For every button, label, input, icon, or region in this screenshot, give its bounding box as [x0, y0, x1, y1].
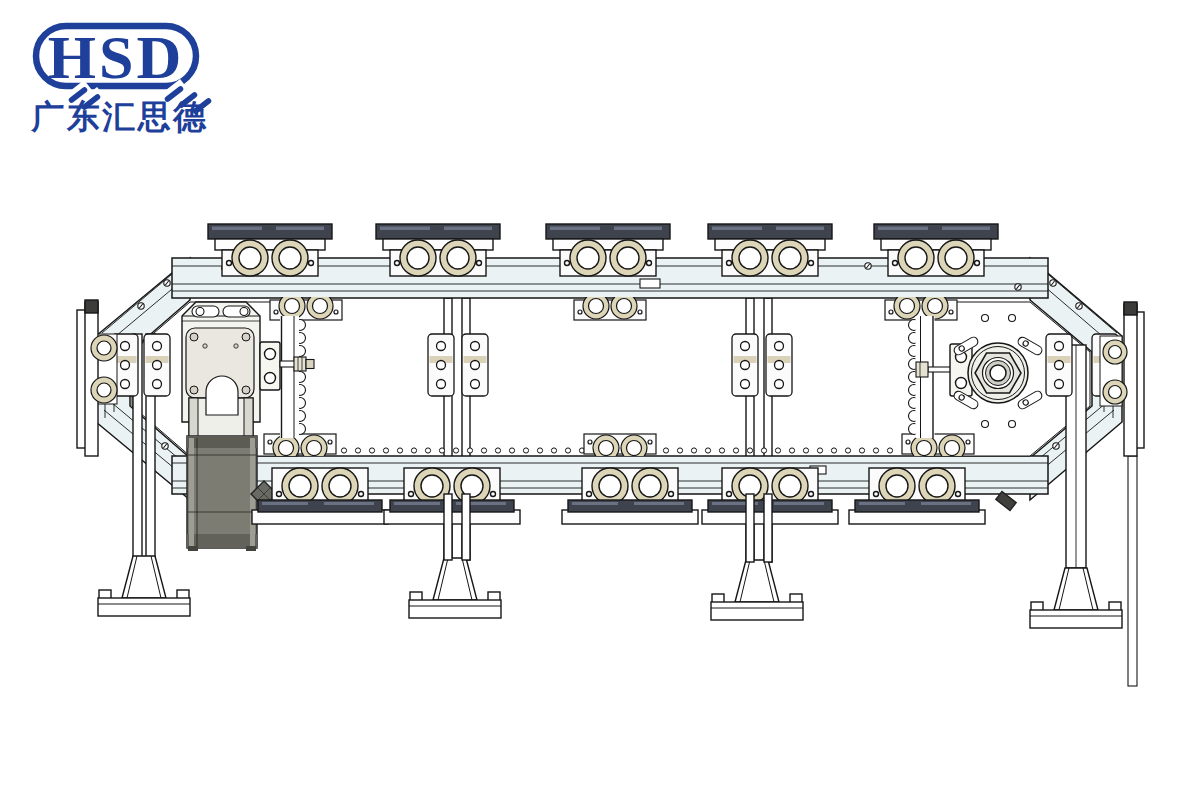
chain-link: [397, 448, 402, 453]
chain-link: [523, 448, 528, 453]
pallet-carrier-top: [208, 224, 332, 276]
chain-link: [509, 448, 514, 453]
chain-link: [887, 448, 892, 453]
chain-link: [817, 448, 822, 453]
chain-link: [761, 448, 766, 453]
chain-link: [705, 448, 710, 453]
bearing-bracket: [1046, 334, 1072, 396]
leg-foot: [711, 560, 803, 620]
gear-reducer: [182, 302, 260, 438]
leg-foot: [98, 556, 190, 616]
bolt: [1050, 280, 1056, 286]
drive-sprocket: [280, 316, 306, 438]
chain-link: [719, 448, 724, 453]
chain-link: [425, 448, 430, 453]
bolt: [138, 303, 144, 309]
chain-link: [747, 448, 752, 453]
pallet-carrier-bottom: [849, 468, 985, 524]
chain-link: [733, 448, 738, 453]
chain-link: [355, 448, 360, 453]
chain-link: [775, 448, 780, 453]
page: HSD 广东汇思德: [0, 0, 1200, 800]
bearing-bracket: [428, 334, 454, 396]
chain-link: [467, 448, 472, 453]
chain-link: [873, 448, 878, 453]
chain-link: [439, 448, 444, 453]
bearing-bracket: [766, 334, 792, 396]
pallet-carrier-top: [874, 224, 998, 276]
pallet-carrier-top: [708, 224, 832, 276]
chain-link: [663, 448, 668, 453]
chain-link: [831, 448, 836, 453]
bearing-bracket: [732, 334, 758, 396]
chain-link: [691, 448, 696, 453]
chain-link: [341, 448, 346, 453]
chain-link: [565, 448, 570, 453]
chain-link: [481, 448, 486, 453]
chain-link: [453, 448, 458, 453]
bearing-bracket: [144, 334, 170, 396]
chain-link: [803, 448, 808, 453]
drive-motor: [187, 436, 257, 551]
chain-link: [383, 448, 388, 453]
pallet-carrier-top: [376, 224, 500, 276]
leg-foot: [1030, 568, 1122, 628]
bearing-bracket: [462, 334, 488, 396]
bolt: [162, 443, 168, 449]
leg-feet: [98, 556, 1122, 628]
pallet-carrier-bottom: [562, 468, 698, 524]
bolt: [865, 263, 871, 269]
chain-link: [551, 448, 556, 453]
bolt: [1015, 284, 1021, 290]
chain-link: [859, 448, 864, 453]
chain-link: [495, 448, 500, 453]
chain-link: [789, 448, 794, 453]
pallet-carrier-bottom: [252, 468, 388, 524]
leg-foot: [409, 558, 501, 618]
bolt: [164, 280, 170, 286]
bolt: [1076, 303, 1082, 309]
idler-bearing: [968, 343, 1028, 403]
chain-link: [369, 448, 374, 453]
conveyor-drawing: [0, 0, 1200, 800]
chain-link: [411, 448, 416, 453]
chain-link: [845, 448, 850, 453]
chain-link: [537, 448, 542, 453]
chain-link: [677, 448, 682, 453]
pallet-carriers-bottom: [252, 468, 985, 524]
bolt: [1053, 443, 1059, 449]
pallet-carrier-top: [546, 224, 670, 276]
